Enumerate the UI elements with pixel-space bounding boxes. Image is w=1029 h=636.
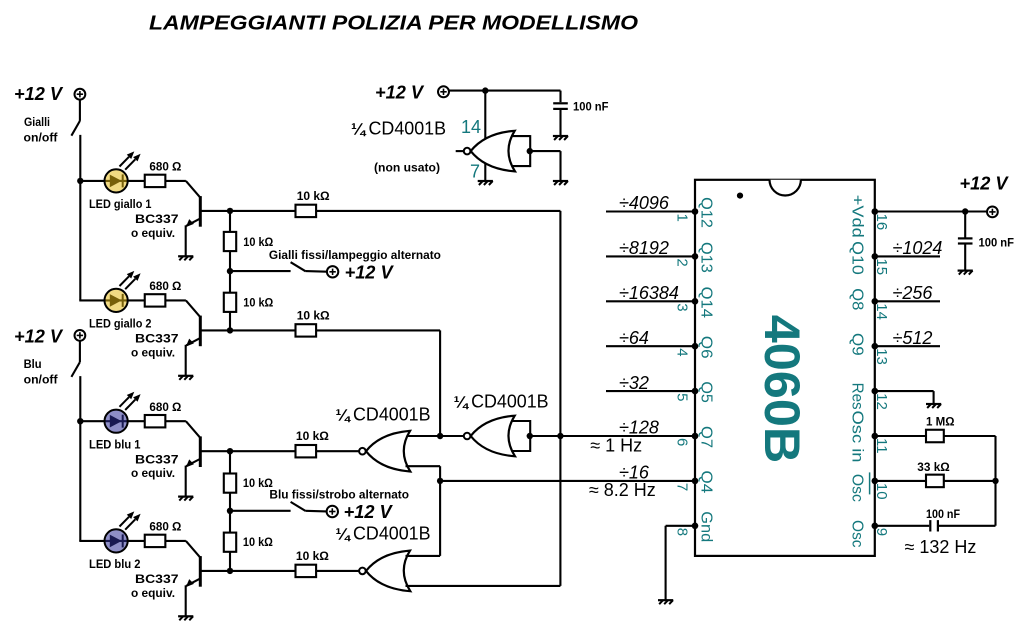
svg-text:÷64: ÷64 [619,328,649,348]
svg-text:Osc: Osc [849,474,866,502]
svg-text:+12 V: +12 V [14,84,64,104]
svg-text:o equiv.: o equiv. [131,586,175,600]
svg-text:16: 16 [873,214,890,231]
svg-text:100 nF: 100 nF [926,507,960,521]
svg-text:Q14: Q14 [697,287,714,318]
svg-text:4: 4 [674,348,691,356]
svg-text:¼: ¼ [454,392,470,411]
svg-text:14: 14 [873,303,890,320]
svg-text:≈ 132 Hz: ≈ 132 Hz [905,537,977,557]
svg-text:10 kΩ: 10 kΩ [243,535,273,549]
svg-text:LED giallo 2: LED giallo 2 [89,317,152,331]
svg-text:Q13: Q13 [697,242,714,273]
svg-text:LAMPEGGIANTI POLIZIA PER MODEL: LAMPEGGIANTI POLIZIA PER MODELLISMO [149,13,638,35]
svg-text:Gialli fissi/lampeggio alterna: Gialli fissi/lampeggio alternato [269,248,441,262]
svg-text:7: 7 [674,483,691,491]
svg-text:Q12: Q12 [697,197,714,228]
svg-text:Q4: Q4 [697,471,714,494]
svg-text:11: 11 [873,438,890,454]
svg-text:Osc: Osc [849,520,866,548]
svg-text:12: 12 [873,393,890,410]
svg-text:14: 14 [461,117,481,137]
svg-text:o equiv.: o equiv. [131,466,175,480]
svg-text:100 nF: 100 nF [573,99,609,113]
svg-text:BC337: BC337 [135,453,179,467]
svg-text:CD4001B: CD4001B [369,119,447,139]
svg-text:Q7: Q7 [697,426,714,448]
svg-text:BC337: BC337 [135,332,179,346]
svg-text:¼: ¼ [336,525,352,544]
svg-text:33 kΩ: 33 kΩ [917,460,950,474]
svg-text:Gnd: Gnd [697,511,714,542]
svg-text:3: 3 [674,303,691,311]
svg-text:on/off: on/off [24,131,59,145]
svg-text:1 MΩ: 1 MΩ [926,414,955,428]
svg-text:÷32: ÷32 [619,373,649,393]
svg-text:CD4001B: CD4001B [353,404,431,424]
svg-text:≈ 1 Hz: ≈ 1 Hz [590,436,642,456]
svg-text:BC337: BC337 [135,212,179,226]
svg-text:Blu: Blu [24,357,42,371]
svg-text:÷256: ÷256 [893,283,934,303]
svg-text:+12 V: +12 V [375,83,425,103]
svg-text:+12 V: +12 V [960,173,1010,193]
svg-text:6: 6 [674,438,691,446]
svg-text:1: 1 [674,214,691,222]
svg-text:≈ 8.2 Hz: ≈ 8.2 Hz [589,480,656,500]
svg-text:LED blu 2: LED blu 2 [89,557,141,571]
svg-text:o equiv.: o equiv. [131,226,175,240]
svg-text:Q10: Q10 [849,241,866,275]
svg-text:Q8: Q8 [849,288,866,310]
svg-text:15: 15 [873,258,890,275]
svg-text:10 kΩ: 10 kΩ [297,189,330,203]
svg-text:CD4001B: CD4001B [353,524,431,544]
svg-text:10 kΩ: 10 kΩ [297,309,330,323]
svg-text:10: 10 [873,483,890,500]
svg-text:÷8192: ÷8192 [619,238,669,258]
svg-text:LED blu 1: LED blu 1 [89,438,141,452]
svg-text:on/off: on/off [24,373,59,387]
svg-text:680 Ω: 680 Ω [149,520,181,534]
svg-text:10 kΩ: 10 kΩ [296,549,329,563]
svg-text:Osc in: Osc in [849,411,866,463]
svg-text:9: 9 [873,528,890,536]
svg-text:+12 V: +12 V [14,326,64,346]
svg-text:LED giallo 1: LED giallo 1 [89,197,152,211]
svg-text:7: 7 [470,162,480,182]
svg-text:+12 V: +12 V [345,262,395,282]
svg-text:2: 2 [674,258,691,266]
svg-text:Q5: Q5 [697,381,714,403]
svg-text:5: 5 [674,393,691,401]
svg-text:Gialli: Gialli [24,115,50,129]
svg-text:680 Ω: 680 Ω [149,279,181,293]
svg-text:8: 8 [674,528,691,536]
svg-text:10 kΩ: 10 kΩ [296,429,329,443]
svg-text:BC337: BC337 [135,572,179,586]
svg-text:Q6: Q6 [697,336,714,359]
svg-text:10 kΩ: 10 kΩ [243,235,273,249]
svg-text:¼: ¼ [336,405,352,424]
svg-text:Blu fissi/strobo alternato: Blu fissi/strobo alternato [269,488,409,502]
svg-text:÷1024: ÷1024 [893,238,943,258]
svg-text:680 Ω: 680 Ω [149,160,181,174]
svg-text:÷16384: ÷16384 [619,283,679,303]
svg-text:Q9: Q9 [849,333,866,356]
svg-text:÷512: ÷512 [893,328,933,348]
svg-text:¼: ¼ [351,120,367,139]
svg-text:13: 13 [873,348,890,365]
svg-text:Res: Res [849,383,866,410]
svg-text:+12 V: +12 V [344,502,394,522]
svg-text:10 kΩ: 10 kΩ [243,296,273,310]
svg-text:4060B: 4060B [754,315,810,464]
svg-text:(non usato): (non usato) [374,161,440,175]
svg-text:÷4096: ÷4096 [619,193,670,213]
svg-text:680 Ω: 680 Ω [149,400,181,414]
svg-text:o equiv.: o equiv. [131,345,175,359]
svg-text:CD4001B: CD4001B [471,391,548,411]
svg-text:+Vdd: +Vdd [849,195,866,238]
svg-text:100 nF: 100 nF [979,235,1015,249]
